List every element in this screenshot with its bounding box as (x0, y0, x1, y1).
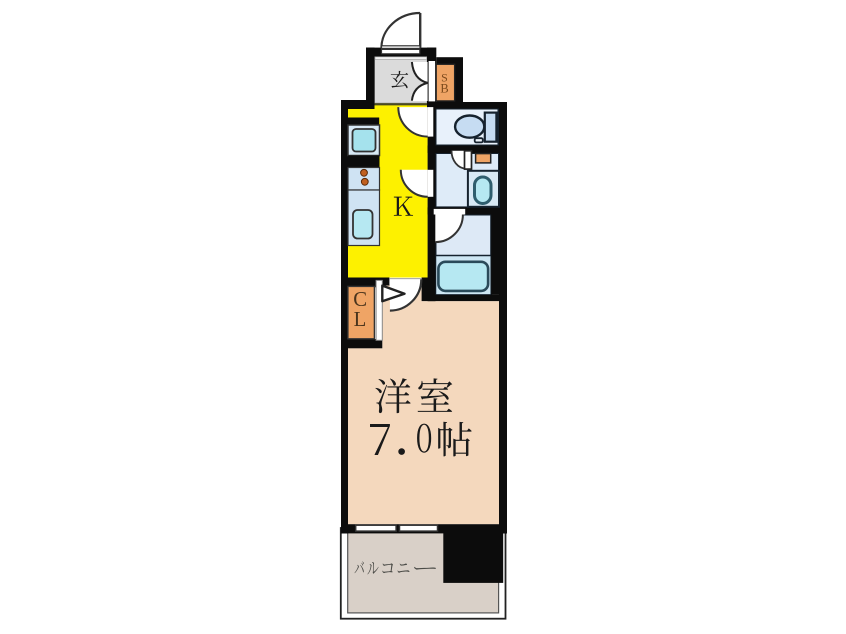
svg-text:B: B (440, 82, 448, 96)
svg-text:C: C (353, 289, 367, 311)
svg-text:L: L (354, 309, 367, 331)
